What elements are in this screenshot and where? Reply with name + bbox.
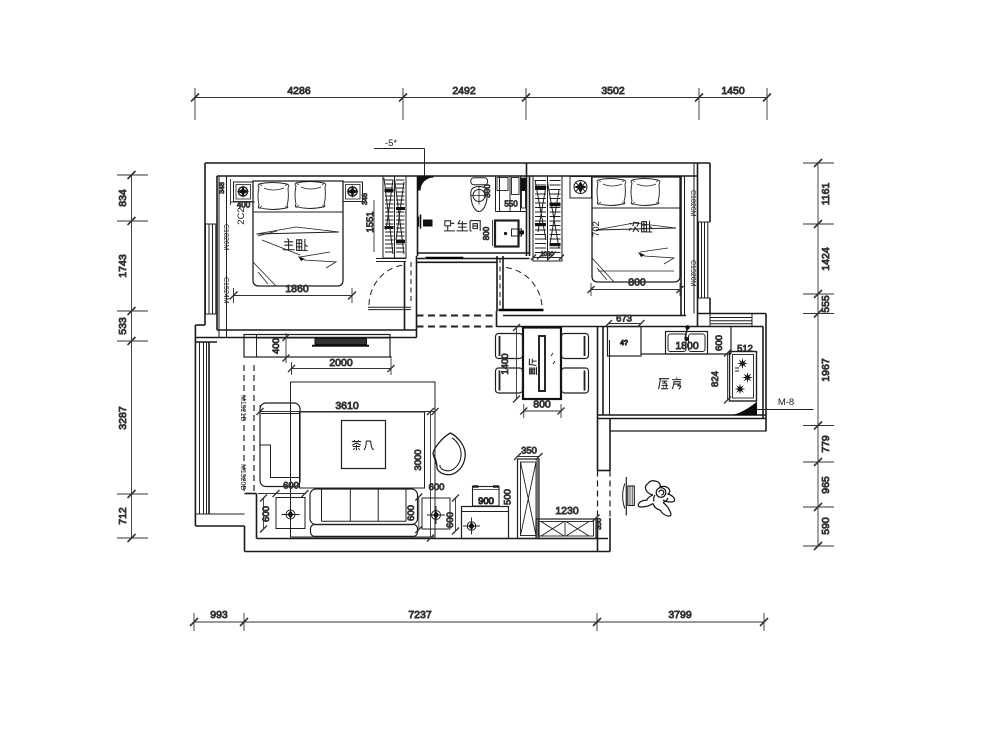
svg-text:3610: 3610 (335, 400, 359, 412)
svg-text:348: 348 (362, 193, 369, 205)
svg-text:-5*: -5* (385, 138, 397, 149)
svg-text:1551: 1551 (365, 211, 376, 232)
svg-text:4286: 4286 (287, 85, 311, 97)
svg-text:2492: 2492 (452, 85, 476, 97)
svg-text:834: 834 (117, 189, 129, 207)
svg-text:1743: 1743 (117, 254, 129, 278)
svg-text:1424: 1424 (820, 247, 832, 271)
svg-text:600: 600 (406, 505, 417, 521)
svg-text:7237: 7237 (408, 609, 432, 621)
svg-text:4?: 4? (620, 340, 628, 347)
svg-text:1800: 1800 (675, 340, 699, 352)
svg-text:800: 800 (482, 226, 491, 240)
svg-text:900: 900 (478, 496, 494, 507)
svg-text:2C2: 2C2 (236, 207, 247, 224)
svg-text:512: 512 (737, 344, 753, 355)
svg-text:600: 600 (261, 506, 272, 522)
svg-text:C1524M: C1524M (222, 277, 229, 304)
svg-text:400: 400 (271, 338, 282, 354)
svg-text:673: 673 (616, 314, 632, 325)
svg-text:3000: 3000 (413, 449, 424, 470)
svg-text:993: 993 (210, 609, 228, 621)
svg-text:3287: 3287 (117, 406, 129, 430)
svg-text:500: 500 (503, 489, 514, 505)
svg-text:800: 800 (533, 399, 551, 411)
svg-text:800: 800 (628, 277, 646, 289)
svg-text:C1826M: C1826M (222, 224, 229, 251)
svg-text:600: 600 (283, 481, 299, 492)
svg-text:348: 348 (219, 182, 226, 194)
svg-text:550: 550 (504, 200, 518, 209)
svg-text:1080: 1080 (540, 252, 554, 258)
svg-text:600: 600 (429, 482, 445, 493)
svg-text:1161: 1161 (820, 183, 832, 206)
svg-text:C1826M: C1826M (689, 190, 696, 217)
svg-text:C1520M: C1520M (689, 260, 696, 287)
svg-text:2000: 2000 (329, 357, 353, 369)
svg-text:300: 300 (483, 184, 492, 198)
svg-text:600: 600 (714, 335, 725, 351)
svg-text:590: 590 (820, 517, 832, 535)
svg-text:1400: 1400 (500, 353, 511, 374)
svg-text:600: 600 (445, 512, 456, 528)
svg-text:1230: 1230 (555, 505, 579, 517)
svg-text:3502: 3502 (601, 85, 625, 97)
svg-text:555: 555 (820, 295, 832, 313)
svg-text:M1520B: M1520B (239, 464, 246, 490)
svg-text:M1521B: M1521B (239, 395, 246, 421)
svg-text:779: 779 (820, 435, 832, 453)
svg-text:1450: 1450 (721, 85, 745, 97)
svg-text:533: 533 (117, 317, 129, 335)
svg-text:M-8: M-8 (778, 397, 794, 408)
svg-text:3799: 3799 (668, 609, 692, 621)
svg-text:824: 824 (710, 371, 721, 387)
svg-text:1967: 1967 (820, 358, 832, 382)
svg-text:350: 350 (521, 446, 537, 457)
svg-text:965: 965 (820, 476, 832, 494)
svg-text:350: 350 (596, 518, 603, 530)
svg-text:1860: 1860 (285, 283, 309, 295)
svg-text:712: 712 (117, 507, 129, 525)
svg-text:702: 702 (591, 221, 602, 237)
